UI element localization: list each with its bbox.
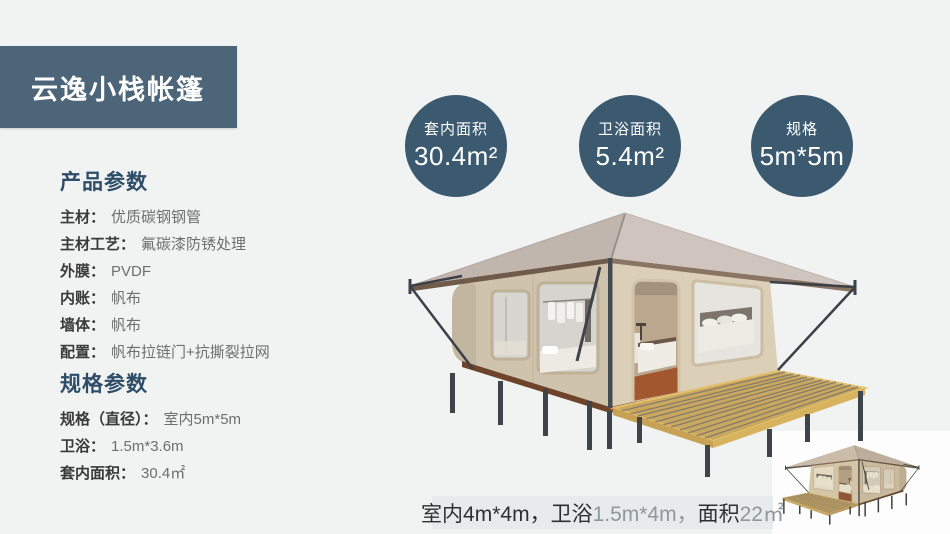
param-row: 内账：帆布 (60, 285, 270, 312)
title-banner: 云逸小栈帐篷 (0, 46, 237, 128)
param-row: 墙体：帆布 (60, 312, 270, 339)
caption-segment: 室内4m*4m， (421, 498, 551, 528)
stat-circle-bathroom-area: 卫浴面积 5.4m² (579, 95, 681, 197)
slide: 云逸小栈帐篷 产品参数 主材：优质碳钢钢管 主材工艺：氟碳漆防锈处理 外膜：PV… (0, 0, 950, 534)
param-value: 帆布 (111, 317, 141, 334)
stat-label: 规格 (751, 118, 853, 139)
spec-rows: 规格（直径）：室内5m*5m 卫浴：1.5m*3.6m 套内面积：30.4㎡ (60, 406, 241, 487)
param-label: 主材： (60, 209, 105, 226)
dimensions-caption: 室内4m*4m， 卫浴 1.5m*4m， 面积 22㎡ (432, 496, 773, 529)
caption-segment: 面积 (698, 498, 740, 528)
stat-label: 套内面积 (405, 118, 507, 139)
caption-segment: 卫浴 (551, 498, 593, 528)
section-heading: 规格参数 (60, 368, 241, 398)
stat-label: 卫浴面积 (579, 118, 681, 139)
spec-row: 套内面积：30.4㎡ (60, 460, 241, 487)
param-value: 帆布拉链门+抗撕裂拉网 (111, 344, 270, 361)
param-value: 帆布 (111, 290, 141, 307)
section-heading: 产品参数 (60, 166, 270, 196)
param-label: 主材工艺： (60, 236, 135, 253)
param-row: 配置：帆布拉链门+抗撕裂拉网 (60, 339, 270, 366)
spec-value: 室内5m*5m (164, 411, 242, 428)
stat-value: 5.4m² (579, 141, 681, 172)
param-value: 氟碳漆防锈处理 (141, 236, 246, 253)
param-label: 外膜： (60, 263, 105, 280)
spec-value: 30.4㎡ (141, 465, 185, 482)
spec-label: 套内面积： (60, 465, 135, 482)
spec-value: 1.5m*3.6m (111, 438, 184, 455)
param-value: 优质碳钢钢管 (111, 209, 201, 226)
param-row: 外膜：PVDF (60, 258, 270, 285)
small-tent-render (762, 438, 950, 534)
caption-segment: 1.5m*4m， (593, 498, 698, 528)
param-label: 墙体： (60, 317, 105, 334)
stat-circle-size: 规格 5m*5m (751, 95, 853, 197)
param-label: 配置： (60, 344, 105, 361)
stat-value: 5m*5m (751, 141, 853, 172)
stat-value: 30.4m² (405, 141, 507, 172)
param-value: PVDF (111, 263, 151, 280)
caption-segment: 22㎡ (740, 498, 784, 528)
tent-left-wall (452, 261, 610, 413)
spec-label: 规格（直径）： (60, 411, 158, 428)
param-row: 主材：优质碳钢钢管 (60, 204, 270, 231)
spec-row: 卫浴：1.5m*3.6m (60, 433, 241, 460)
param-rows: 主材：优质碳钢钢管 主材工艺：氟碳漆防锈处理 外膜：PVDF 内账：帆布 墙体：… (60, 204, 270, 366)
stat-circle-interior-area: 套内面积 30.4m² (405, 95, 507, 197)
spec-row: 规格（直径）：室内5m*5m (60, 406, 241, 433)
param-label: 内账： (60, 290, 105, 307)
spec-label: 卫浴： (60, 438, 105, 455)
section-product-params: 产品参数 主材：优质碳钢钢管 主材工艺：氟碳漆防锈处理 外膜：PVDF 内账：帆… (60, 166, 270, 366)
page-title: 云逸小栈帐篷 (0, 68, 205, 107)
section-spec-params: 规格参数 规格（直径）：室内5m*5m 卫浴：1.5m*3.6m 套内面积：30… (60, 368, 241, 487)
param-row: 主材工艺：氟碳漆防锈处理 (60, 231, 270, 258)
